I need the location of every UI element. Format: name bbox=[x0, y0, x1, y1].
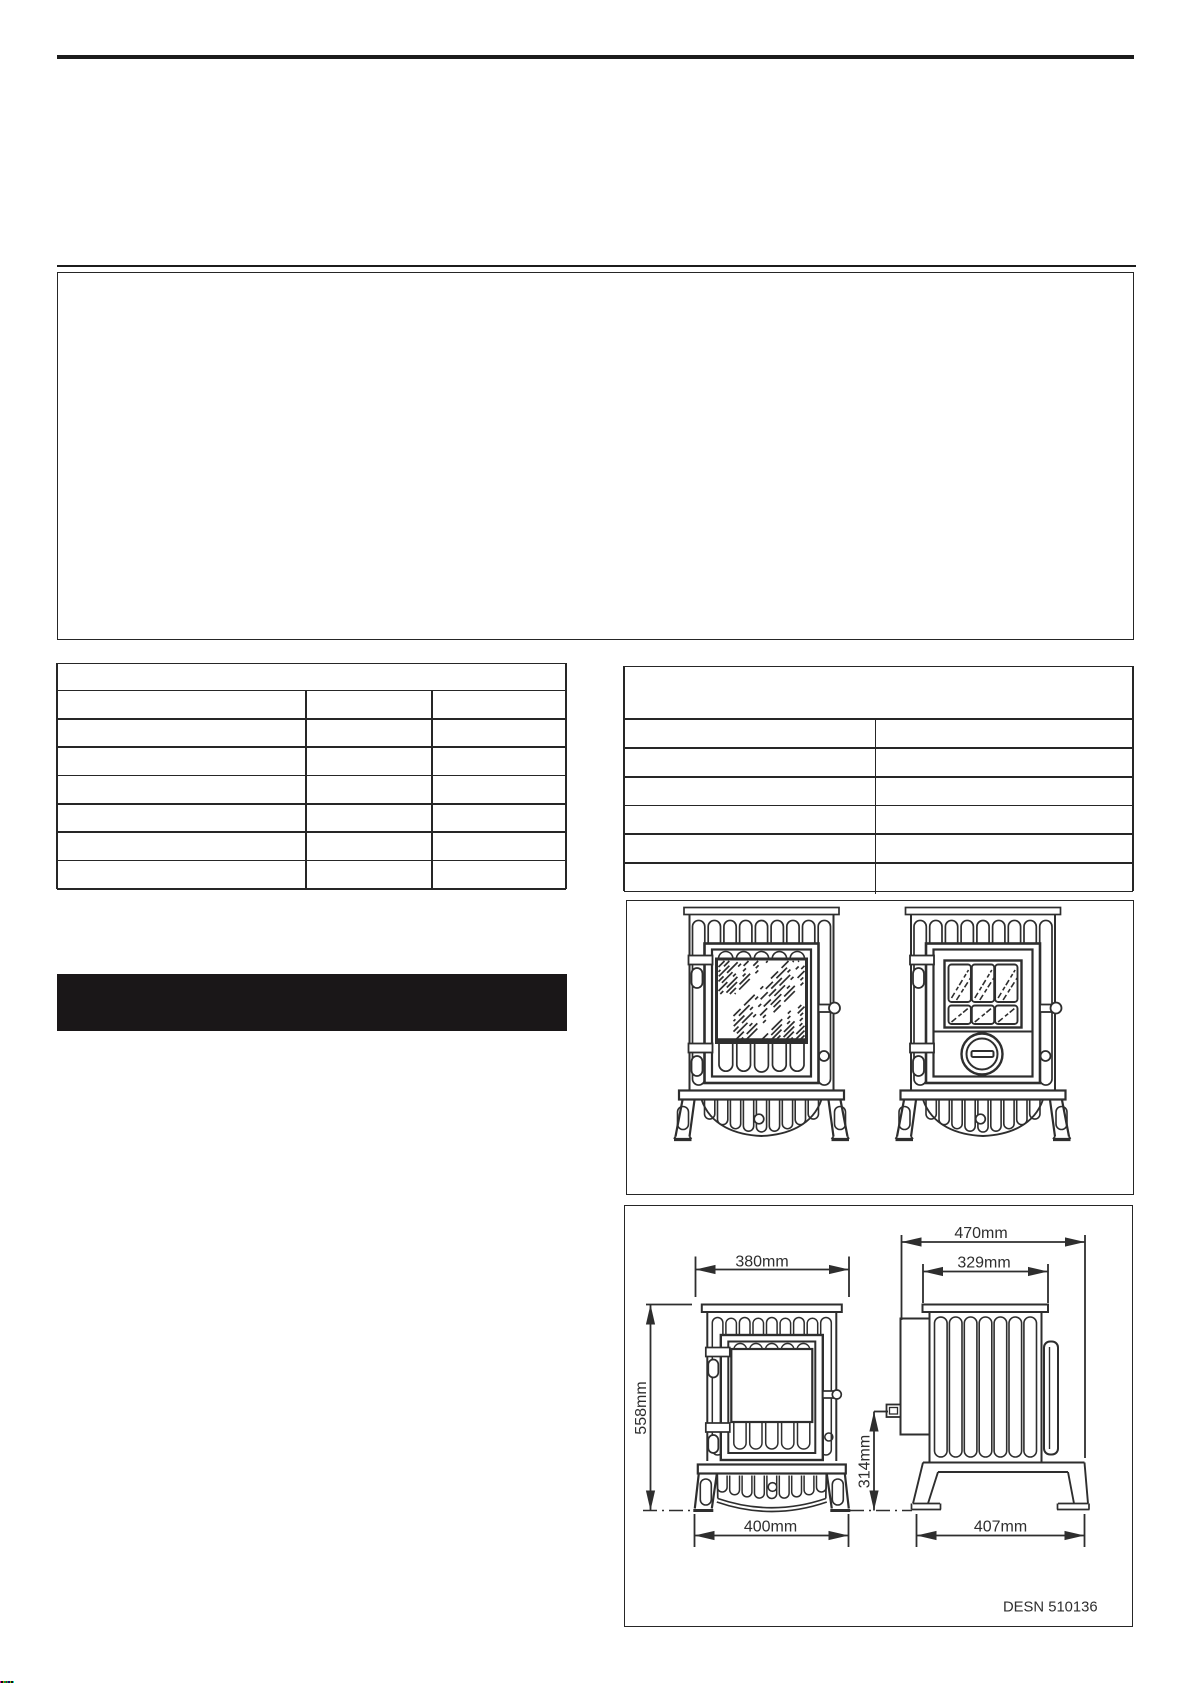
svg-text:329mm: 329mm bbox=[957, 1255, 1010, 1272]
svg-text:DESN 510136: DESN 510136 bbox=[1003, 1600, 1098, 1616]
svg-text:380mm: 380mm bbox=[735, 1254, 788, 1271]
svg-text:470mm: 470mm bbox=[954, 1225, 1007, 1242]
svg-text:400mm: 400mm bbox=[744, 1519, 797, 1536]
svg-text:558mm: 558mm bbox=[633, 1381, 650, 1434]
svg-text:407mm: 407mm bbox=[974, 1519, 1027, 1536]
svg-text:314mm: 314mm bbox=[857, 1435, 874, 1488]
